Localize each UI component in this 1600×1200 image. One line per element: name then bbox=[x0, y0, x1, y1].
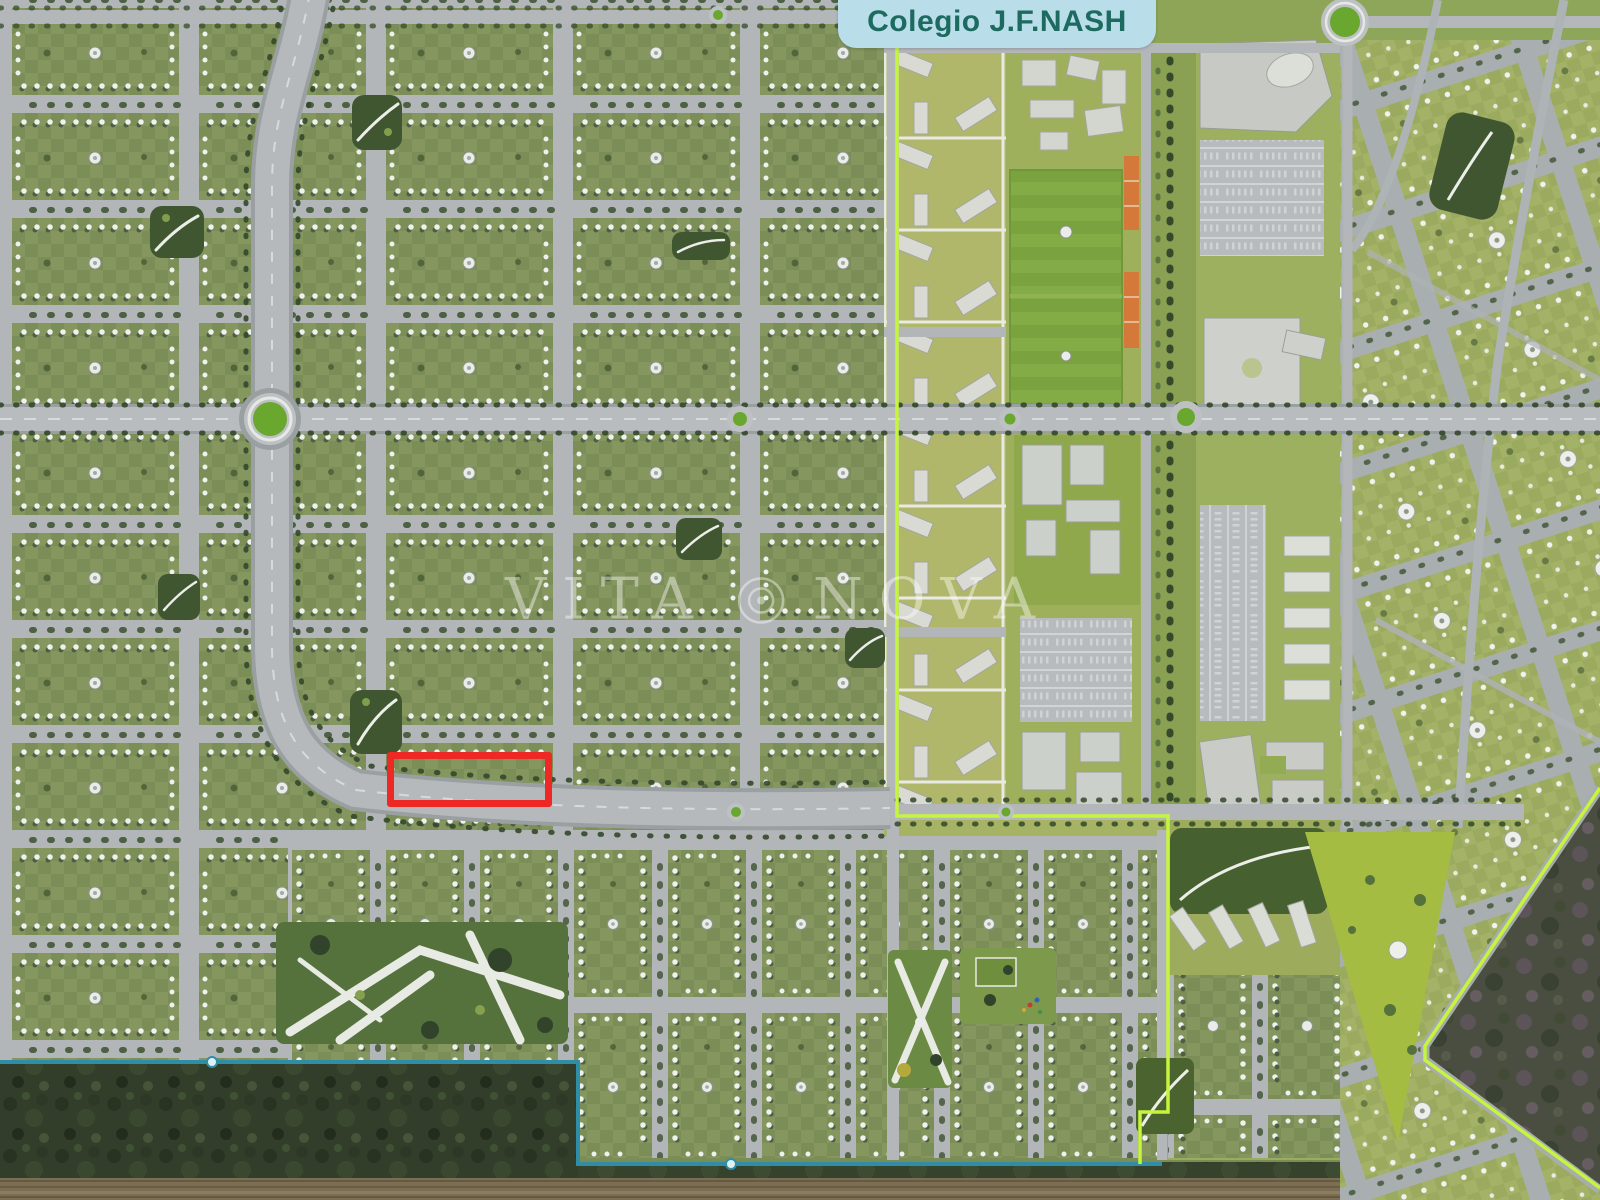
roundabout-mini bbox=[998, 804, 1014, 820]
roundabout-mini bbox=[727, 803, 745, 821]
central-park bbox=[276, 922, 568, 1044]
parking-lot-big bbox=[1200, 505, 1266, 721]
roundabout-mini bbox=[709, 6, 727, 24]
masterplan-map[interactable] bbox=[0, 0, 1600, 1200]
school-map-label: Colegio J.F.NASH bbox=[838, 0, 1156, 48]
boundary-marker bbox=[207, 1057, 217, 1067]
boundary-marker bbox=[726, 1159, 736, 1169]
sports-fields bbox=[1010, 156, 1139, 422]
roundabout-school bbox=[1321, 0, 1369, 46]
masterplan-viewer: Colegio J.F.NASH VITA NOVA bbox=[0, 0, 1600, 1200]
roundabout-mini bbox=[999, 408, 1021, 430]
roundabout-main bbox=[239, 388, 301, 450]
roundabout-mini bbox=[1170, 401, 1202, 433]
parking-lot-north bbox=[1200, 140, 1324, 256]
school-label-text: Colegio J.F.NASH bbox=[867, 5, 1127, 39]
selected-lot-highlight[interactable] bbox=[387, 752, 552, 807]
roundabout-mini bbox=[727, 406, 753, 432]
parking-lot-mid bbox=[1020, 618, 1132, 722]
farm-field bbox=[0, 1178, 1340, 1200]
